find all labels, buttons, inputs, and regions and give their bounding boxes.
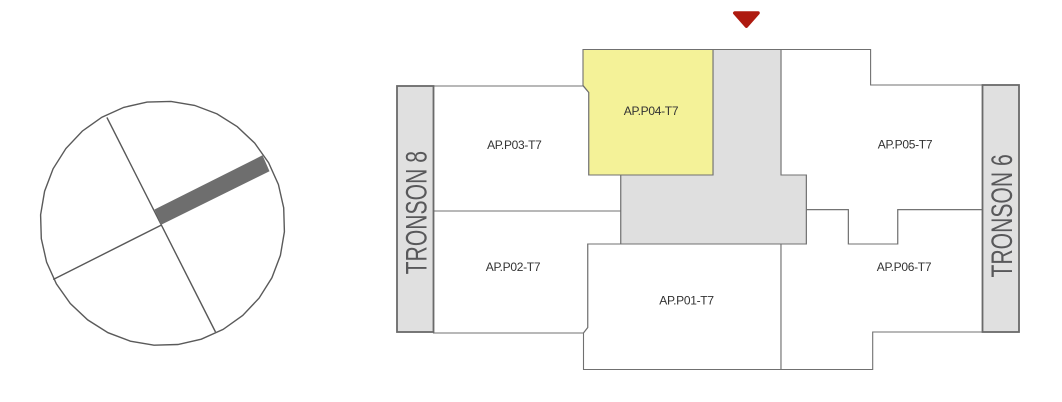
svg-text:AP.P02-T7: AP.P02-T7 — [486, 260, 541, 274]
svg-text:AP.P06-T7: AP.P06-T7 — [877, 260, 932, 274]
svg-text:TRONSON 6: TRONSON 6 — [986, 154, 1018, 277]
svg-text:AP.P03-T7: AP.P03-T7 — [487, 138, 542, 152]
svg-text:AP.P05-T7: AP.P05-T7 — [878, 138, 933, 152]
svg-text:AP.P04-T7: AP.P04-T7 — [624, 104, 679, 118]
svg-text:AP.P01-T7: AP.P01-T7 — [659, 294, 714, 308]
svg-text:TRONSON 8: TRONSON 8 — [401, 151, 433, 274]
